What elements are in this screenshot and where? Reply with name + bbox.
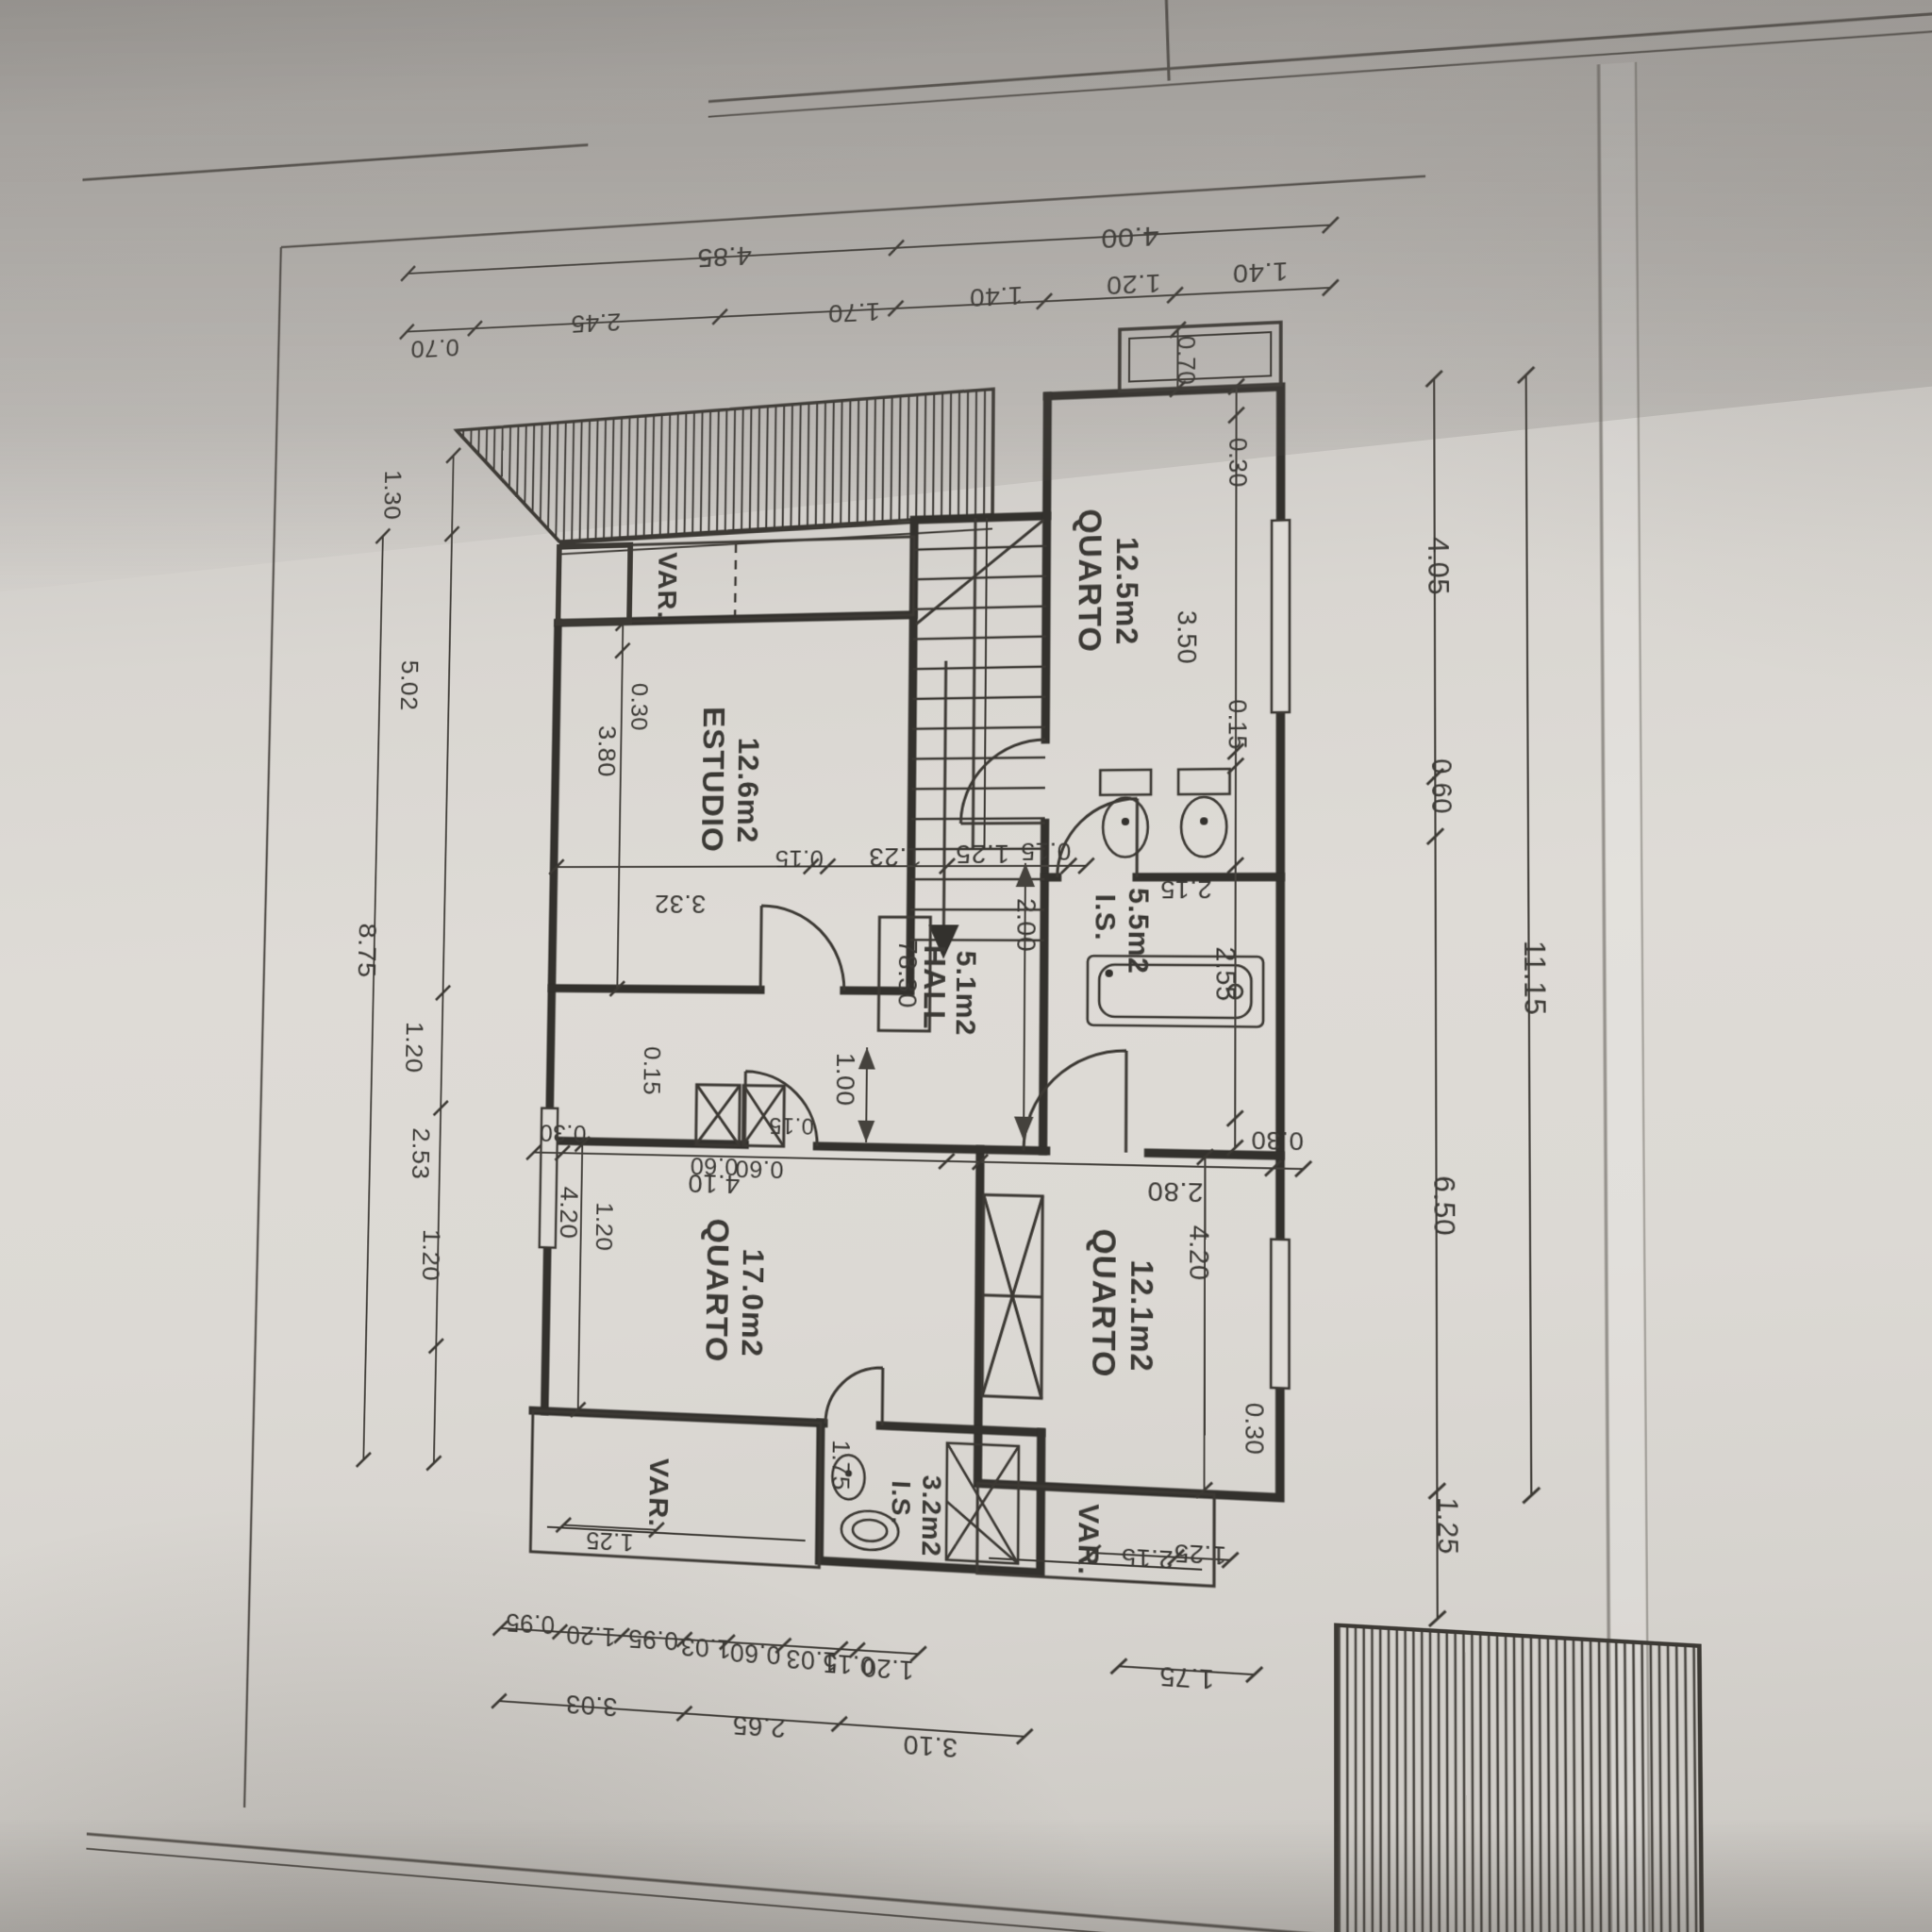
dimension-label: 0.30 [1251, 1125, 1304, 1155]
dimension-label: 0.70 [1172, 335, 1199, 386]
dimension-label: 2.55 [1209, 946, 1241, 1001]
dimension-label: 1.00 [830, 1053, 860, 1107]
dimension-label: 2.00 [1010, 898, 1041, 952]
dimension-label: 2.65 [732, 1709, 786, 1743]
dimension-label: 1.20 [400, 1022, 428, 1074]
room-label: QUARTO [1072, 508, 1108, 654]
dimension-label: 0.95 [627, 1624, 678, 1655]
room-label: VAR. [642, 1457, 675, 1529]
dimension-label: 4.85 [697, 240, 752, 273]
dimension-label: 2.15 [1160, 875, 1212, 903]
dimension-label: 2.53 [407, 1127, 435, 1180]
room-label: 12.6m2 [730, 737, 764, 843]
dimension-label: 1.25 [1431, 1496, 1464, 1555]
dimension-label: 0.30 [1240, 1402, 1268, 1456]
dimension-label: 0.15 [1021, 837, 1072, 864]
dimension-label: 4.05 [1421, 536, 1455, 595]
room-label: I.S. [1089, 894, 1122, 941]
dimension-label: 0.60 [729, 1637, 781, 1668]
elevation-label: 78.30 [892, 940, 923, 1008]
room-label: VAR. [652, 552, 683, 620]
room-label: 5.1m2 [949, 950, 982, 1036]
dimension-label: 1.30 [378, 470, 407, 521]
dimension-label: 3.50 [1172, 610, 1203, 665]
dimension-label: 0.30 [625, 683, 652, 731]
floor-plan-drawing: QUARTO12.5m2ESTUDIO12.6m2HALL5.1m2I.S.5.… [35, 0, 1932, 1932]
dimension-label: 4.00 [1101, 220, 1159, 254]
dimension-label: 3.32 [655, 890, 707, 919]
room-label: VAR. [1072, 1503, 1105, 1577]
dimension-label: 0.60 [1425, 758, 1457, 814]
dimension-label: 1.20 [417, 1228, 445, 1281]
dimension-label: 2.45 [571, 308, 621, 338]
floor-plan-photo: QUARTO12.5m2ESTUDIO12.6m2HALL5.1m2I.S.5.… [0, 0, 1932, 1932]
dimension-label: 1.03 [680, 1631, 731, 1662]
dimension-label: 0.30 [1224, 437, 1252, 488]
roof-hatch [440, 375, 1005, 625]
dimension-label: 0.15 [638, 1046, 664, 1095]
dimension-label: 0.60 [735, 1155, 784, 1183]
dimension-label: 0.15 [769, 1112, 814, 1139]
dimension-label: 1.25 [1174, 1538, 1226, 1569]
dimension-label: 1.75 [826, 1440, 854, 1491]
adjacent-drawing-hatched-strip [1336, 1625, 1702, 1932]
toilet-icon [1103, 797, 1148, 857]
dimension-label: 3.03 [565, 1689, 617, 1723]
room-label: 12.5m2 [1108, 537, 1143, 646]
dimension-label: 0.15 [774, 844, 824, 871]
room-label: 12.1m2 [1124, 1259, 1159, 1373]
dimension-label: 3.80 [592, 725, 622, 777]
dimension-label: 1.70 [828, 296, 881, 327]
dimension-label: 1.25 [586, 1526, 634, 1556]
room-label: 17.0m2 [735, 1248, 770, 1357]
dimension-label: 4.20 [1183, 1224, 1214, 1281]
dimension-label: 3.10 [903, 1728, 958, 1763]
dimension-label: 2.80 [1147, 1175, 1203, 1207]
dimension-label: 11.15 [1517, 941, 1553, 1016]
dimension-label: 1.20 [861, 1652, 914, 1684]
paper-tilt-layer: QUARTO12.5m2ESTUDIO12.6m2HALL5.1m2I.S.5.… [35, 0, 1932, 1932]
bidet-tank [1178, 769, 1229, 794]
dimension-label: 1.20 [566, 1620, 616, 1651]
dimension-label: 0.15 [1223, 699, 1251, 750]
dimension-label: 1.40 [969, 280, 1023, 312]
staircase [910, 516, 1047, 959]
dimension-label: 1.23 [869, 841, 923, 872]
plan-labels: QUARTO12.5m2ESTUDIO12.6m2HALL5.1m2I.S.5.… [336, 0, 1932, 1833]
room-label: QUARTO [1085, 1228, 1123, 1378]
room-label: 3.2m2 [916, 1474, 947, 1558]
room-label: I.S. [886, 1480, 916, 1526]
room-label: QUARTO [699, 1218, 736, 1363]
door-arcs [741, 739, 1138, 1437]
dimension-label: 0.70 [410, 333, 459, 363]
dimension-label: 1.25 [956, 839, 1009, 869]
bidet-icon [1181, 797, 1226, 858]
dimension-label: 1.40 [1232, 256, 1288, 288]
dimension-label: 0.30 [539, 1119, 586, 1146]
dimension-label: 4.20 [554, 1186, 583, 1240]
dimension-label: 8.75 [352, 924, 382, 978]
dimension-label: 1.75 [1159, 1660, 1214, 1693]
dimension-label: 2.15 [1121, 1542, 1174, 1574]
dimension-label: 6.50 [1426, 1175, 1461, 1237]
dimension-label: 1.20 [1107, 268, 1161, 300]
room-label: ESTUDIO [695, 707, 732, 853]
dimension-label: 1.20 [591, 1202, 617, 1252]
room-label: 5.5m2 [1122, 888, 1155, 974]
dimension-label: 0.60 [690, 1152, 739, 1179]
dimension-label: 0.95 [506, 1607, 556, 1639]
dimension-label: 5.02 [395, 659, 424, 710]
toilet-tank [1100, 770, 1151, 795]
